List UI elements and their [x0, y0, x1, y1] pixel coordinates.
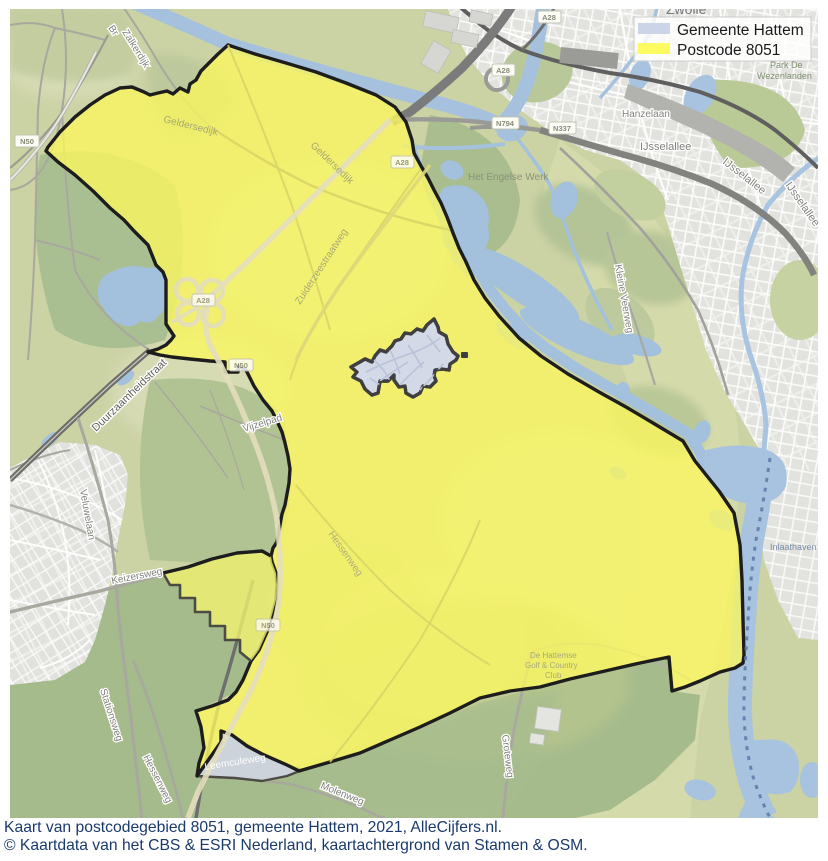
svg-text:Zwolle: Zwolle: [666, 1, 707, 17]
svg-text:Wezenlanden: Wezenlanden: [757, 71, 812, 81]
svg-text:De Hattemse: De Hattemse: [530, 651, 577, 660]
svg-text:Gemeente Hattem: Gemeente Hattem: [677, 22, 804, 39]
svg-text:Golf & Country: Golf & Country: [525, 661, 577, 670]
svg-text:N50: N50: [20, 137, 34, 146]
svg-text:N50: N50: [234, 361, 248, 370]
svg-text:N50: N50: [261, 621, 275, 630]
svg-text:A28: A28: [395, 158, 409, 167]
svg-text:N337: N337: [553, 124, 571, 133]
svg-text:IJsselallee: IJsselallee: [640, 141, 691, 153]
svg-text:A28: A28: [496, 66, 510, 75]
svg-text:Inlaathaven: Inlaathaven: [770, 542, 817, 552]
svg-text:A28: A28: [196, 296, 210, 305]
svg-text:Het Engelse Werk: Het Engelse Werk: [468, 172, 549, 183]
svg-text:Hanzelaan: Hanzelaan: [622, 109, 670, 120]
svg-text:N794: N794: [496, 119, 515, 128]
svg-text:A28: A28: [542, 13, 556, 22]
svg-text:Club: Club: [545, 671, 562, 680]
svg-text:Postcode 8051: Postcode 8051: [677, 42, 780, 59]
